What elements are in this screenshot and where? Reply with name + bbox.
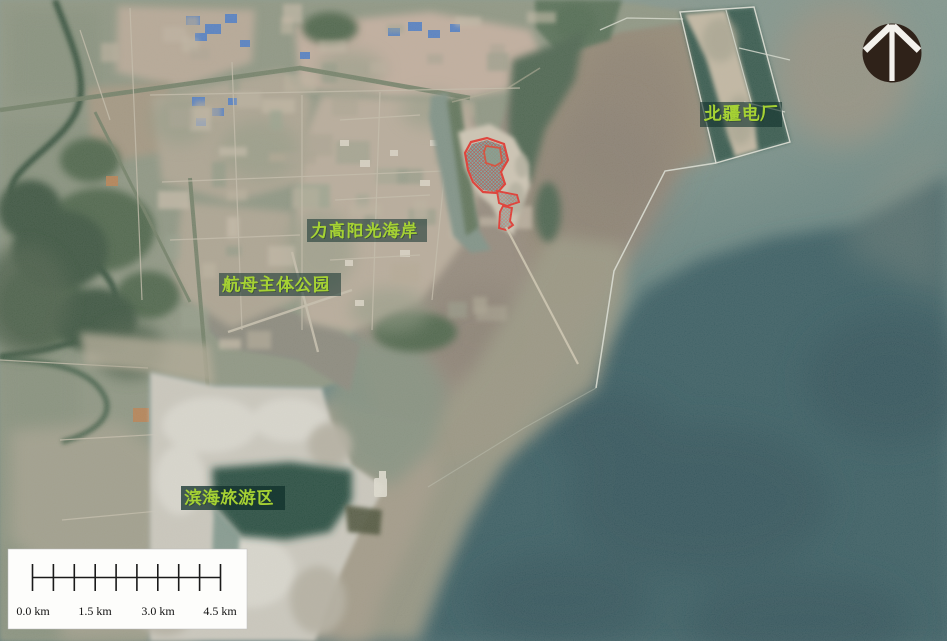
svg-text:0.0 km: 0.0 km — [16, 604, 50, 618]
svg-text:1.5 km: 1.5 km — [78, 604, 112, 618]
svg-text:3.0 km: 3.0 km — [141, 604, 175, 618]
svg-text:4.5 km: 4.5 km — [203, 604, 237, 618]
